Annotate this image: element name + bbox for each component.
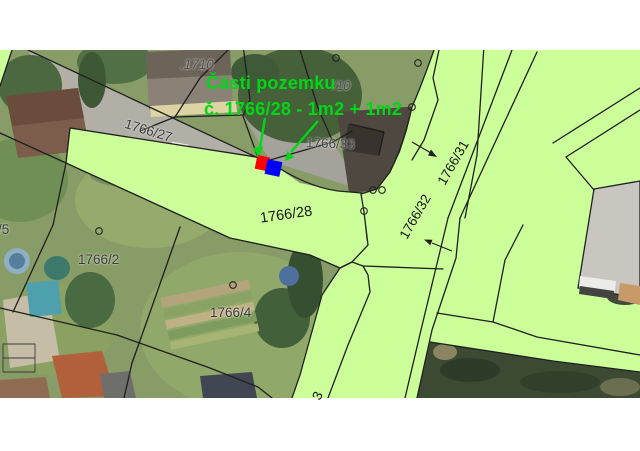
cadastral-map-screenshot: .1710 /10 1766/33 1766/27 1766/28 1766/2… bbox=[0, 0, 640, 451]
blue-highlight-square bbox=[265, 159, 283, 177]
map-canvas[interactable] bbox=[0, 0, 640, 451]
